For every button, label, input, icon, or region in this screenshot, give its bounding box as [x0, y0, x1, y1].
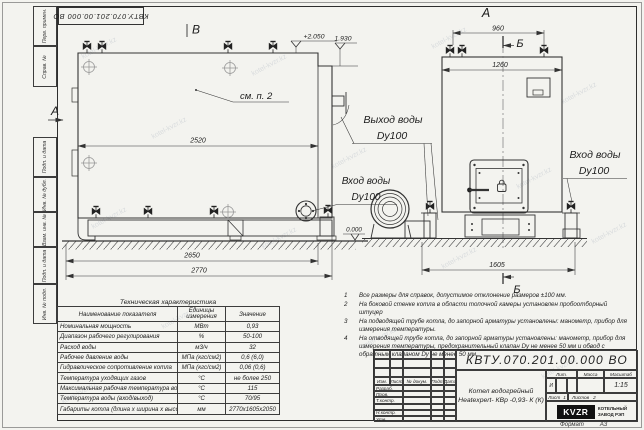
- right-pipe: [562, 202, 580, 239]
- change-cell: [403, 368, 431, 377]
- air-vent-valve-icon: [269, 42, 277, 54]
- dim-2770: 2770: [190, 268, 207, 275]
- elevation-0000: 0.000: [346, 227, 362, 234]
- spec-value: 32: [226, 342, 280, 352]
- note-item: 3 На подводящей трубе котла, до запорной…: [340, 318, 632, 334]
- change-cell: [431, 359, 444, 368]
- note-number: 1: [340, 292, 359, 300]
- mass-value-cell: [577, 378, 604, 393]
- lit-cell: [567, 378, 577, 393]
- spec-name: Максимальная рабочая температура воды: [58, 383, 178, 393]
- spec-name: Габариты котла (длина х ширина х высота): [58, 404, 178, 414]
- control-box: [527, 78, 550, 97]
- sign-row-utv: Утв.: [374, 416, 403, 422]
- spec-value: 115: [226, 383, 280, 393]
- datum-crosshair-icon: [81, 59, 97, 75]
- product-name-line2: Heatexpert- КВр -0,93- К (К): [458, 396, 544, 405]
- scale-header: Масштаб: [604, 370, 638, 378]
- company-name: КОТЕЛЬНЫЙ ЗАВОД РЭП: [598, 406, 627, 416]
- note-number: 2: [340, 301, 359, 317]
- lit-cell: [556, 378, 566, 393]
- mass-header: Масса: [577, 370, 604, 378]
- safety-valve-icon: [540, 46, 548, 58]
- water-outlet-dn: Dy100: [377, 130, 408, 142]
- change-cell: [390, 368, 403, 377]
- door-lock-icon: [498, 184, 507, 192]
- change-header-doc: № докум.: [403, 377, 431, 385]
- water-inlet-right-label: Вход воды: [570, 149, 621, 161]
- doc-number-cell: КВТУ.070.201.00.000 ВО: [456, 350, 638, 370]
- change-cell: [390, 350, 403, 359]
- change-cell: [390, 359, 403, 368]
- sign-cell: [431, 416, 444, 422]
- water-inlet-left-label: Вход воды: [342, 176, 391, 187]
- dim-1260: 1260: [492, 62, 508, 69]
- spec-header-value: Значение: [226, 307, 280, 322]
- spec-header-units: Единицы измерения: [178, 307, 226, 322]
- air-vent-valve-icon: [224, 42, 232, 54]
- spec-name: Рабочее давление воды: [58, 352, 178, 362]
- note-number: 4: [340, 335, 359, 359]
- change-cell: [431, 368, 444, 377]
- sheets-value: 2: [593, 395, 596, 400]
- boiler-front-view: [362, 42, 587, 250]
- lit-value-cell: И: [546, 378, 556, 393]
- water-outlet-label: Выход воды: [363, 114, 422, 126]
- tech-spec-title: Техническая характеристика: [57, 299, 279, 306]
- note-number: 3: [340, 318, 359, 334]
- spec-units: °С: [178, 373, 226, 383]
- section-b-top-label: Б: [516, 38, 523, 50]
- dim-2650: 2650: [183, 253, 200, 260]
- company-cell: KVZR КОТЕЛЬНЫЙ ЗАВОД РЭП: [546, 401, 638, 422]
- spec-value: 50-100: [226, 332, 280, 342]
- elevation-2050: +2.050: [304, 34, 325, 41]
- air-vent-valve-icon: [98, 42, 106, 54]
- spec-header-name: Наименование показателя: [58, 307, 178, 322]
- spec-units: МПа (кгс/см2): [178, 363, 226, 373]
- sheet-value: 1: [563, 395, 566, 400]
- datum-crosshair-icon: [81, 155, 97, 171]
- section-a-label: А: [50, 104, 59, 118]
- spec-value: не более 250: [226, 373, 280, 383]
- change-cell: [444, 359, 456, 368]
- view-b-label: В: [192, 23, 200, 37]
- change-header-data: Дата: [444, 377, 456, 385]
- change-cell: [403, 350, 431, 359]
- spec-value: 0,06 (0,6): [226, 363, 280, 373]
- dim-960: 960: [492, 26, 504, 33]
- note-text: На боковой стенке котла в области топочн…: [359, 301, 632, 317]
- dim-1605: 1605: [489, 262, 505, 269]
- spec-name: Расход воды: [58, 342, 178, 352]
- safety-valve-icon: [458, 46, 466, 58]
- change-cell: [374, 368, 390, 377]
- see-item-note: см. п. 2: [240, 91, 273, 102]
- outlet-pipe-stub: [332, 96, 344, 106]
- sign-cell: [403, 416, 431, 422]
- datum-crosshair-icon: [222, 60, 238, 76]
- spec-units: %: [178, 332, 226, 342]
- kvzr-logo: KVZR: [557, 405, 595, 419]
- change-header-list: Лист: [390, 377, 403, 385]
- drain-valve-icon: [324, 206, 332, 218]
- air-vent-valve-icon: [83, 42, 91, 54]
- title-block: Изм. Лист № докум. Подп. Дата Разраб. Пр…: [373, 349, 637, 421]
- sheets-cell: Листов 2: [568, 393, 638, 401]
- change-cell: [444, 368, 456, 377]
- spec-units: °С: [178, 394, 226, 404]
- drawing-sheet: kotel-kvzr.kz kotel-kvzr.kz kotel-kvzr.k…: [0, 0, 644, 430]
- format-value: А3: [600, 422, 607, 428]
- spec-name: Температура воды (вход/выход): [58, 394, 178, 404]
- spec-value: 0,6 (6,0): [226, 352, 280, 362]
- change-cell: [431, 350, 444, 359]
- lit-header: Лит.: [546, 370, 577, 378]
- drain-valve-icon: [144, 207, 152, 219]
- view-a-label: А: [481, 6, 490, 20]
- change-cell: [403, 359, 431, 368]
- drain-valve-icon: [92, 207, 100, 219]
- spec-units: °С: [178, 383, 226, 393]
- spec-name: Номинальная мощность: [58, 322, 178, 332]
- left-pipe: [421, 202, 437, 239]
- spec-value: 2770х1605х2050: [226, 404, 280, 414]
- water-inlet-right-dn: Dy100: [579, 165, 610, 177]
- company-name-line2: ЗАВОД РЭП: [598, 412, 627, 417]
- sheet-cell: Лист 1: [546, 393, 568, 401]
- sheets-label: Листов: [572, 395, 589, 400]
- spec-units: МПа (кгс/см2): [178, 352, 226, 362]
- spec-value: 70/95: [226, 394, 280, 404]
- change-header-izm: Изм.: [374, 377, 390, 385]
- water-inlet-left-dn: Dy100: [352, 192, 381, 203]
- format-label: Формат: [560, 422, 584, 428]
- change-cell: [444, 350, 456, 359]
- product-name-cell: Котел водогрейный Heatexpert- КВр -0,93-…: [456, 370, 546, 422]
- furnace-door: [467, 160, 528, 213]
- product-name-line1: Котел водогрейный: [469, 387, 534, 396]
- scale-value-cell: 1:15: [604, 378, 638, 393]
- note-text: Все размеры для справок, допустимое откл…: [359, 292, 632, 300]
- spec-name: Диапазон рабочего регулирования: [58, 332, 178, 342]
- spec-units: МВт: [178, 322, 226, 332]
- tech-spec-section: Техническая характеристика Наименование …: [57, 299, 279, 415]
- tech-spec-table: Наименование показателя Единицы измерени…: [57, 306, 280, 415]
- pipe-valve-icon: [567, 202, 575, 214]
- sheet-label: Лист: [548, 395, 560, 400]
- drain-valve-icon: [210, 207, 218, 219]
- note-item: 2 На боковой стенке котла в области топо…: [340, 301, 632, 317]
- spec-name: Гидравлическое сопротивление котла: [58, 363, 178, 373]
- change-header-podp: Подп.: [431, 377, 444, 385]
- elevation-1930: 1.930: [334, 36, 351, 43]
- change-cell: [374, 359, 390, 368]
- spec-units: мм: [178, 404, 226, 414]
- company-name-line1: КОТЕЛЬНЫЙ: [598, 406, 627, 411]
- safety-valve-icon: [446, 46, 454, 58]
- spec-value: 0,93: [226, 322, 280, 332]
- sign-cell: [444, 416, 456, 422]
- boiler-side-view: [62, 42, 368, 250]
- spec-name: Температура уходящих газов: [58, 373, 178, 383]
- note-text: На подводящей трубе котла, до запорной а…: [359, 318, 632, 334]
- change-cell: [374, 350, 390, 359]
- format-row: Формат А3: [560, 422, 640, 428]
- note-item: 1 Все размеры для справок, допустимое от…: [340, 292, 632, 300]
- dim-2520: 2520: [189, 138, 206, 145]
- spec-units: м3/ч: [178, 342, 226, 352]
